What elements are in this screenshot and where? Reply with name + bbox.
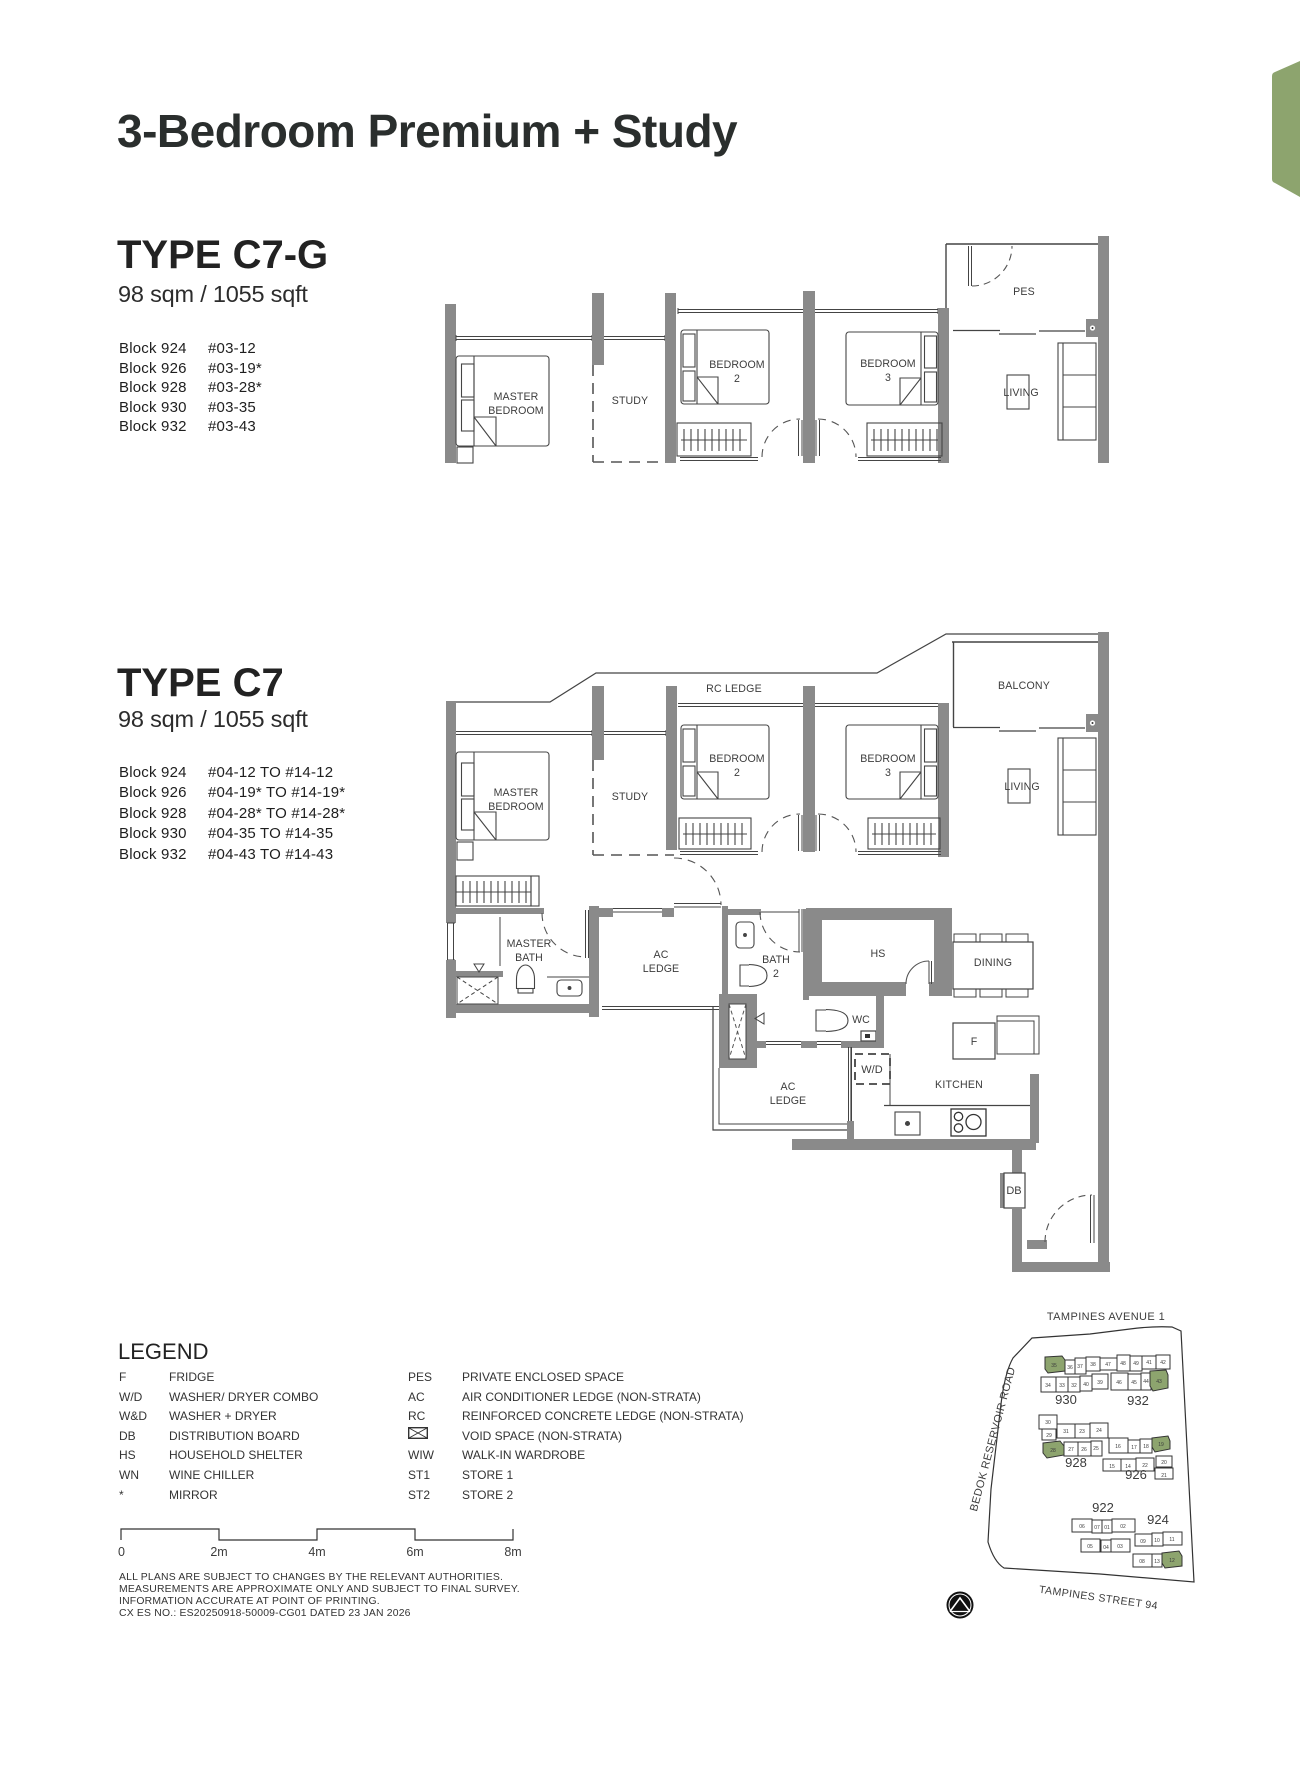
svg-text:0: 0 bbox=[118, 1545, 125, 1559]
svg-text:23: 23 bbox=[1079, 1429, 1085, 1435]
svg-text:STUDY: STUDY bbox=[612, 395, 648, 407]
svg-text:05: 05 bbox=[1087, 1544, 1093, 1550]
svg-text:20: 20 bbox=[1161, 1460, 1167, 1466]
svg-text:MASTER: MASTER bbox=[494, 787, 539, 799]
svg-text:BEDROOM: BEDROOM bbox=[488, 405, 543, 417]
svg-text:21: 21 bbox=[1161, 1473, 1167, 1479]
svg-text:04: 04 bbox=[1103, 1545, 1109, 1551]
svg-text:25: 25 bbox=[1093, 1446, 1099, 1452]
svg-text:26: 26 bbox=[1081, 1447, 1087, 1453]
svg-text:4m: 4m bbox=[308, 1545, 325, 1559]
svg-text:BEDROOM: BEDROOM bbox=[488, 801, 543, 813]
svg-text:930: 930 bbox=[1055, 1392, 1077, 1407]
svg-text:928: 928 bbox=[1065, 1455, 1087, 1470]
svg-text:DINING: DINING bbox=[974, 957, 1012, 969]
svg-text:42: 42 bbox=[1160, 1360, 1166, 1366]
svg-text:932: 932 bbox=[1127, 1393, 1149, 1408]
svg-text:TAMPINES AVENUE 1: TAMPINES AVENUE 1 bbox=[1047, 1311, 1165, 1323]
svg-text:14: 14 bbox=[1125, 1464, 1131, 1470]
svg-text:22: 22 bbox=[1142, 1463, 1148, 1469]
svg-text:BEDROOM: BEDROOM bbox=[709, 753, 764, 765]
svg-text:49: 49 bbox=[1133, 1361, 1139, 1367]
svg-text:44: 44 bbox=[1143, 1379, 1149, 1385]
svg-text:36: 36 bbox=[1067, 1365, 1073, 1371]
svg-text:LEDGE: LEDGE bbox=[643, 963, 679, 975]
svg-text:32: 32 bbox=[1071, 1383, 1077, 1389]
svg-text:11: 11 bbox=[1169, 1537, 1174, 1543]
svg-text:3: 3 bbox=[885, 372, 891, 384]
svg-text:10: 10 bbox=[1154, 1538, 1160, 1544]
svg-text:F: F bbox=[971, 1036, 978, 1048]
svg-text:03: 03 bbox=[1117, 1544, 1123, 1550]
svg-text:2m: 2m bbox=[210, 1545, 227, 1559]
svg-text:15: 15 bbox=[1109, 1464, 1115, 1470]
svg-text:WC: WC bbox=[852, 1014, 870, 1026]
svg-text:PES: PES bbox=[1013, 286, 1035, 298]
svg-text:DB: DB bbox=[1006, 1185, 1021, 1197]
svg-text:AC: AC bbox=[781, 1081, 796, 1093]
svg-text:39: 39 bbox=[1097, 1380, 1103, 1386]
svg-text:47: 47 bbox=[1105, 1362, 1111, 1368]
svg-text:18: 18 bbox=[1143, 1444, 1149, 1450]
svg-text:8m: 8m bbox=[504, 1545, 521, 1559]
svg-text:3: 3 bbox=[885, 767, 891, 779]
svg-text:41: 41 bbox=[1146, 1360, 1152, 1366]
svg-text:BALCONY: BALCONY bbox=[998, 680, 1050, 692]
svg-text:30: 30 bbox=[1045, 1420, 1051, 1426]
svg-text:27: 27 bbox=[1068, 1447, 1074, 1453]
svg-text:LEDGE: LEDGE bbox=[770, 1095, 806, 1107]
svg-text:37: 37 bbox=[1077, 1364, 1083, 1370]
svg-text:LIVING: LIVING bbox=[1003, 387, 1038, 399]
svg-text:24: 24 bbox=[1096, 1428, 1102, 1434]
svg-text:12: 12 bbox=[1169, 1558, 1175, 1564]
svg-text:13: 13 bbox=[1154, 1559, 1160, 1565]
svg-text:MASTER: MASTER bbox=[494, 391, 539, 403]
svg-text:KITCHEN: KITCHEN bbox=[935, 1079, 983, 1091]
svg-text:BATH: BATH bbox=[762, 954, 790, 966]
svg-text:16: 16 bbox=[1115, 1444, 1121, 1450]
svg-text:BEDROOM: BEDROOM bbox=[709, 359, 764, 371]
svg-text:2: 2 bbox=[734, 373, 740, 385]
svg-text:40: 40 bbox=[1083, 1382, 1089, 1388]
svg-text:02: 02 bbox=[1120, 1524, 1126, 1530]
svg-text:RC LEDGE: RC LEDGE bbox=[706, 683, 762, 695]
svg-text:TAMPINES STREET 94: TAMPINES STREET 94 bbox=[1038, 1584, 1158, 1613]
svg-text:01: 01 bbox=[1104, 1525, 1110, 1531]
svg-text:922: 922 bbox=[1092, 1500, 1114, 1515]
svg-text:07: 07 bbox=[1094, 1525, 1100, 1531]
svg-text:LIVING: LIVING bbox=[1004, 781, 1039, 793]
svg-text:MASTER: MASTER bbox=[507, 938, 552, 950]
svg-text:28: 28 bbox=[1050, 1448, 1056, 1454]
svg-text:2: 2 bbox=[734, 767, 740, 779]
svg-text:33: 33 bbox=[1059, 1383, 1065, 1389]
svg-text:34: 34 bbox=[1045, 1383, 1051, 1389]
svg-text:BEDOK RESERVOIR ROAD: BEDOK RESERVOIR ROAD bbox=[968, 1366, 1018, 1513]
svg-text:6m: 6m bbox=[406, 1545, 423, 1559]
svg-text:09: 09 bbox=[1140, 1539, 1146, 1545]
svg-text:06: 06 bbox=[1079, 1524, 1085, 1530]
svg-text:BEDROOM: BEDROOM bbox=[860, 358, 915, 370]
svg-text:924: 924 bbox=[1147, 1512, 1169, 1527]
svg-text:45: 45 bbox=[1131, 1380, 1137, 1386]
svg-text:BATH: BATH bbox=[515, 952, 543, 964]
svg-text:08: 08 bbox=[1139, 1559, 1145, 1565]
svg-text:2: 2 bbox=[773, 968, 779, 980]
svg-text:STUDY: STUDY bbox=[612, 791, 648, 803]
svg-text:43: 43 bbox=[1156, 1379, 1162, 1385]
svg-text:46: 46 bbox=[1116, 1380, 1122, 1386]
svg-text:35: 35 bbox=[1051, 1363, 1057, 1369]
svg-text:48: 48 bbox=[1120, 1361, 1126, 1367]
svg-text:29: 29 bbox=[1046, 1433, 1052, 1439]
svg-text:AC: AC bbox=[654, 949, 669, 961]
svg-text:HS: HS bbox=[871, 948, 886, 960]
svg-text:BEDROOM: BEDROOM bbox=[860, 753, 915, 765]
svg-text:W/D: W/D bbox=[861, 1064, 882, 1076]
svg-text:38: 38 bbox=[1090, 1362, 1096, 1368]
svg-text:31: 31 bbox=[1063, 1429, 1069, 1435]
svg-text:19: 19 bbox=[1158, 1442, 1164, 1448]
svg-text:17: 17 bbox=[1131, 1445, 1137, 1451]
